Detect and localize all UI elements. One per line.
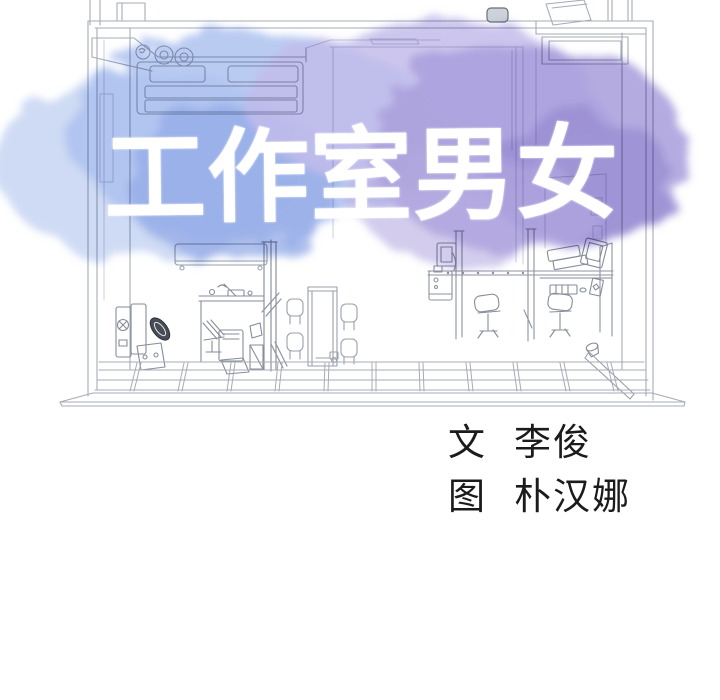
floor-planks <box>95 362 650 391</box>
writer-name: 李俊 <box>514 424 592 461</box>
credit-artist-row: 图 朴汉娜 <box>448 478 631 515</box>
comic-title-page: 工作室男女 文 李俊 图 朴汉娜 <box>0 0 720 700</box>
floor-slab-edge <box>60 393 685 406</box>
credit-writer-row: 文 李俊 <box>448 424 631 461</box>
comic-title: 工作室男女 <box>103 91 665 244</box>
credits: 文 李俊 图 朴汉娜 <box>448 424 631 532</box>
artist-name: 朴汉娜 <box>514 478 631 515</box>
right-baseboard <box>585 352 634 399</box>
low-cabinet <box>137 343 165 370</box>
writer-label: 文 <box>448 424 514 461</box>
pc-tower <box>219 330 243 361</box>
artist-label: 图 <box>448 478 514 515</box>
